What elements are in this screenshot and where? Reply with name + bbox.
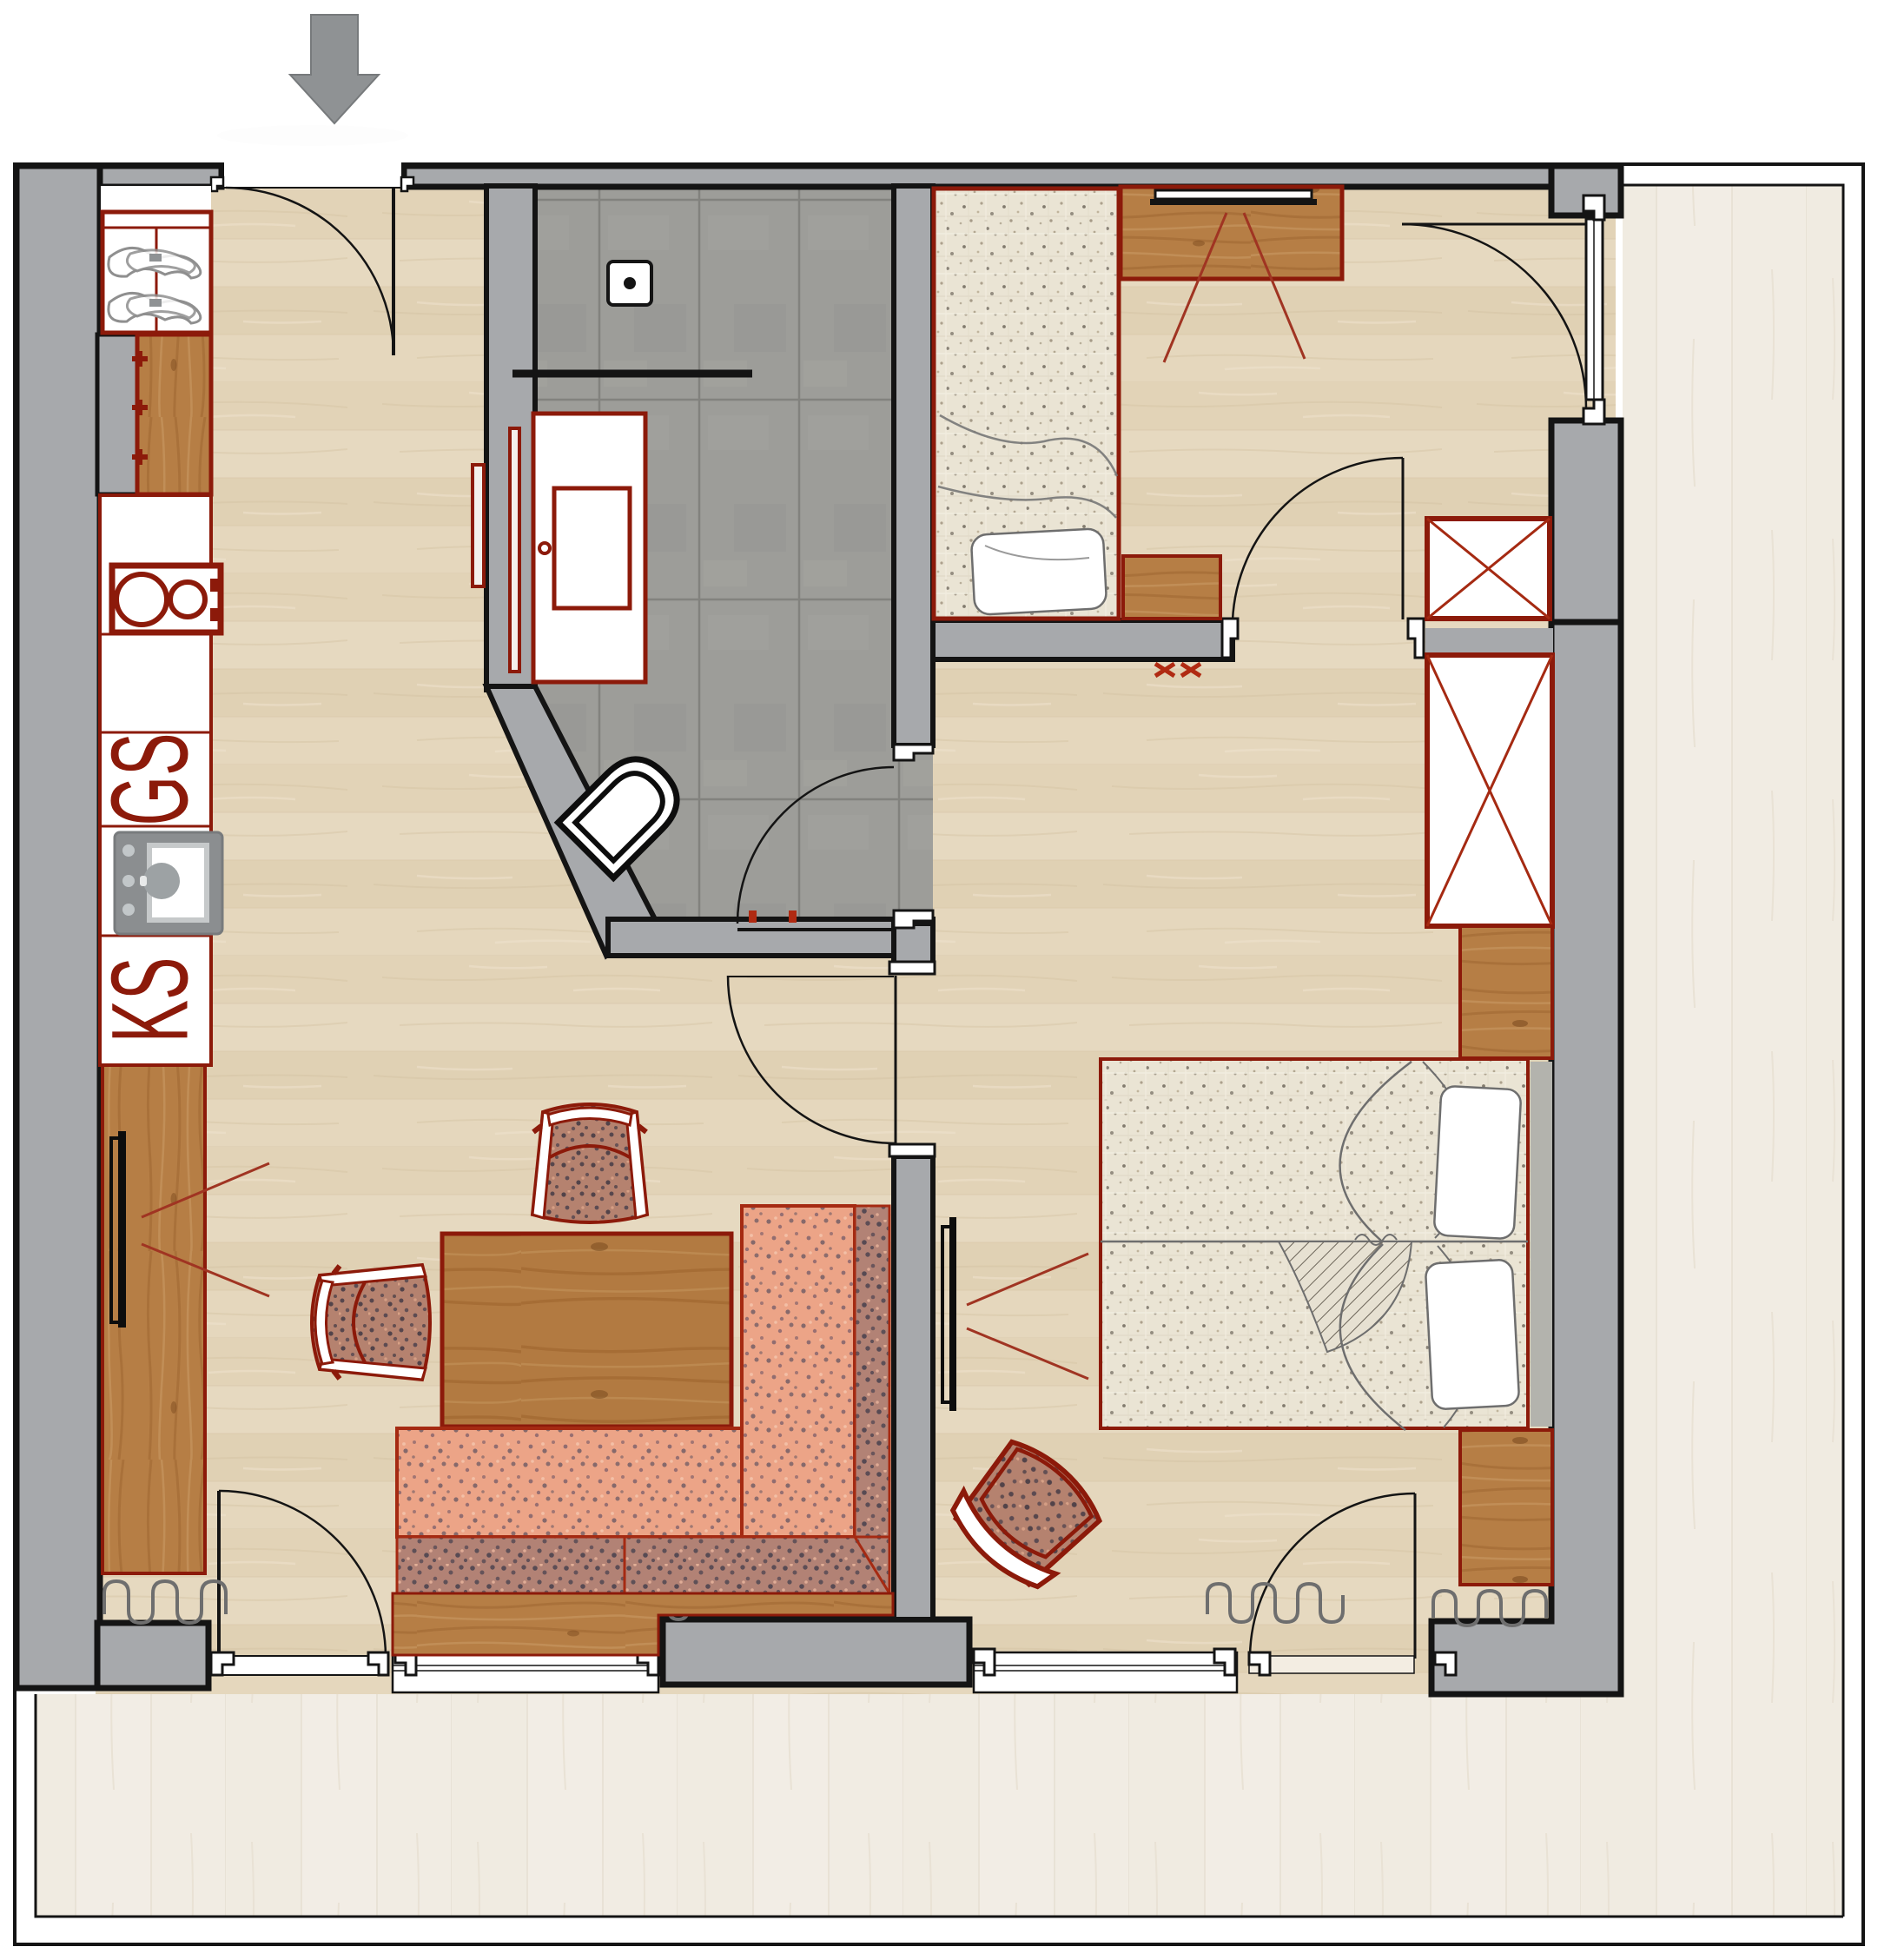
svg-text:KS: KS	[89, 957, 210, 1043]
svg-text:GS: GS	[89, 733, 210, 826]
